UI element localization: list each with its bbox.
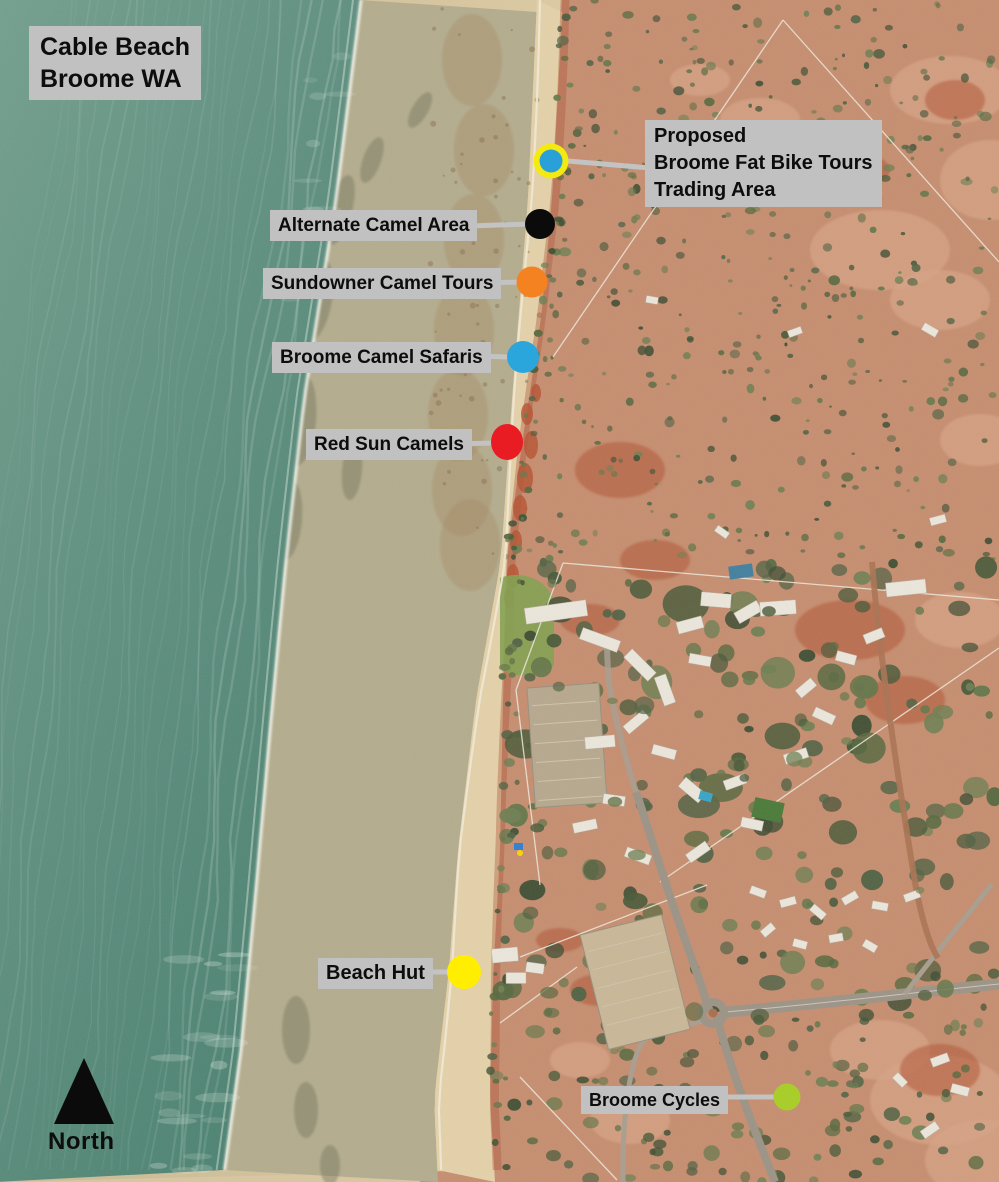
marker-alternate-camel-area xyxy=(525,209,555,239)
label-line: Broome Fat Bike Tours xyxy=(654,150,873,177)
label-alternate-camel-area: Alternate Camel Area xyxy=(270,210,477,241)
marker-beach-hut xyxy=(447,955,481,989)
north-label: North xyxy=(48,1128,114,1156)
label-broome-camel-safaris: Broome Camel Safaris xyxy=(272,342,491,373)
label-red-sun-camels: Red Sun Camels xyxy=(306,429,472,460)
north-arrow-icon xyxy=(54,1058,114,1124)
label-line: Proposed xyxy=(654,123,873,150)
label-broome-cycles: Broome Cycles xyxy=(581,1086,728,1114)
north-indicator: North xyxy=(48,1058,114,1156)
marker-sundowner-camel-tours xyxy=(517,267,548,298)
connector-alternate-camel-area xyxy=(470,224,529,226)
map-title-line: Broome WA xyxy=(40,63,190,95)
marker-broome-cycles xyxy=(774,1084,801,1111)
map-title-box: Cable Beach Broome WA xyxy=(29,26,201,100)
label-line: Trading Area xyxy=(654,177,873,204)
label-proposed-trading-area: Proposed Broome Fat Bike Tours Trading A… xyxy=(645,120,882,207)
marker-proposed-trading-area xyxy=(540,150,563,173)
map-stage: Cable Beach Broome WA Proposed Broome Fa… xyxy=(0,0,999,1182)
map-title-line: Cable Beach xyxy=(40,31,190,63)
label-sundowner-camel-tours: Sundowner Camel Tours xyxy=(263,268,501,299)
marker-broome-camel-safaris xyxy=(507,341,539,373)
marker-red-sun-camels xyxy=(491,424,523,460)
label-beach-hut: Beach Hut xyxy=(318,958,433,989)
